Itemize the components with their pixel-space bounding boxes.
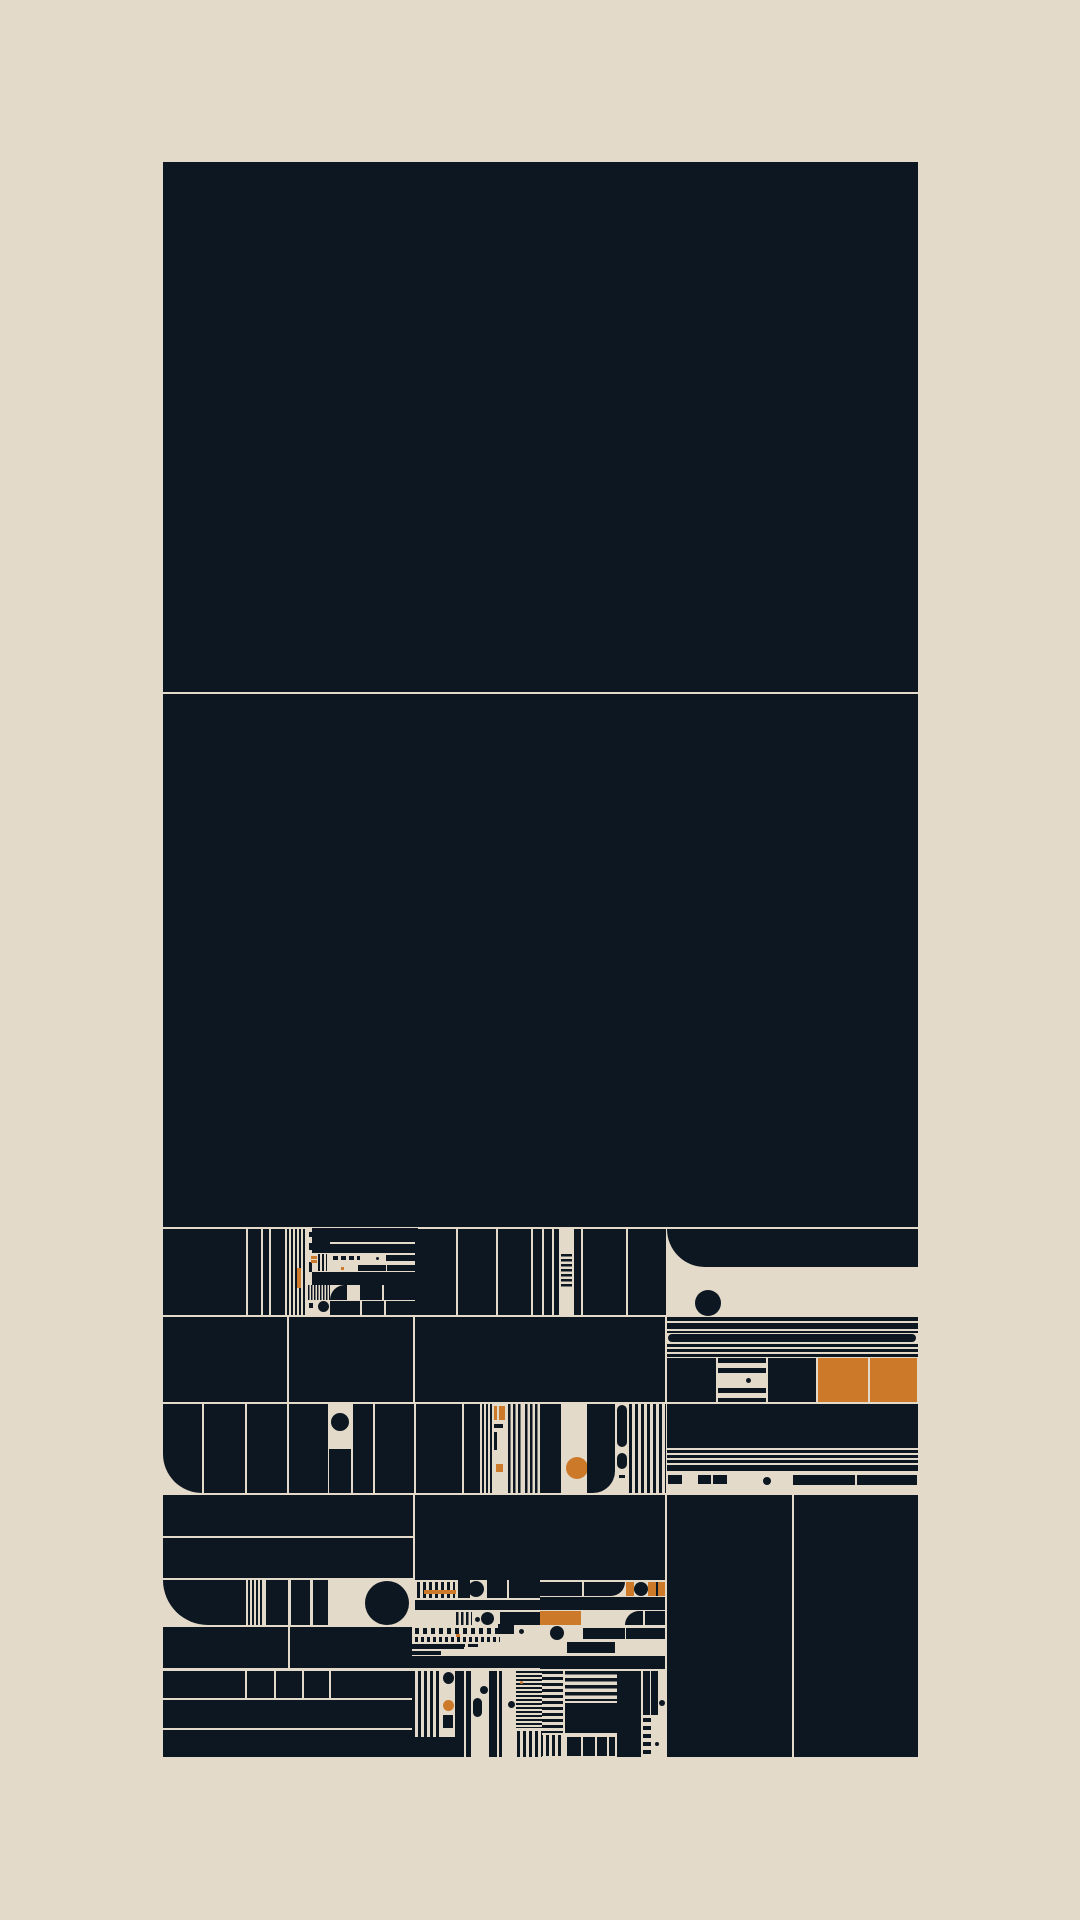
ink-block	[487, 1580, 507, 1598]
accent-shape	[311, 1260, 317, 1263]
ink-block	[793, 1475, 855, 1485]
ink-block	[163, 1317, 287, 1402]
circle-shape	[481, 1612, 494, 1625]
stripe-block	[540, 1735, 563, 1756]
ink-block	[349, 1256, 354, 1260]
ink-block	[567, 1737, 581, 1756]
accent-circle	[566, 1457, 588, 1479]
accent-shape	[626, 1582, 634, 1596]
ink-block	[455, 1644, 465, 1647]
stripe-block	[456, 1612, 472, 1625]
circle-shape	[634, 1582, 648, 1596]
ink-block	[360, 1285, 382, 1300]
ink-block	[263, 1229, 269, 1315]
ink-block	[494, 1432, 497, 1450]
ink-block	[540, 1656, 665, 1669]
ink-block	[415, 1229, 456, 1315]
circle-shape	[519, 1629, 524, 1634]
circle-shape	[655, 1742, 659, 1746]
ink-block	[540, 1582, 582, 1596]
ink-block	[667, 1460, 918, 1463]
ink-block	[330, 1301, 360, 1315]
circle-shape	[480, 1686, 488, 1694]
ink-block	[544, 1229, 552, 1315]
rounded-corner-block	[584, 1582, 625, 1596]
ink-block	[163, 1229, 246, 1315]
ink-block	[163, 1627, 288, 1668]
ladder-column	[561, 1254, 572, 1287]
stripe-block	[516, 1671, 542, 1728]
ink-block	[667, 1317, 918, 1321]
rounded-corner-block	[625, 1611, 643, 1625]
stripe-block	[508, 1404, 521, 1493]
stripe-block	[525, 1404, 540, 1493]
ink-block	[333, 1256, 338, 1260]
ink-block	[387, 1265, 418, 1271]
ink-block	[667, 1331, 918, 1333]
stripe-block	[248, 1580, 263, 1625]
ink-block	[667, 1450, 918, 1453]
ink-block	[309, 1303, 313, 1308]
ink-block	[247, 1671, 274, 1698]
ink-block	[443, 1715, 453, 1728]
ink-block	[331, 1671, 412, 1698]
ink-block	[626, 1628, 665, 1639]
circle-shape	[659, 1700, 665, 1706]
ink-block	[412, 1656, 542, 1668]
ink-block	[357, 1256, 360, 1260]
rounded-corner-block	[163, 1580, 246, 1625]
ink-block	[668, 1475, 682, 1484]
ink-block	[341, 1256, 346, 1260]
accent-shape	[496, 1464, 503, 1472]
ink-block	[498, 1229, 531, 1315]
ink-block	[415, 1495, 665, 1580]
ink-block	[415, 1317, 665, 1402]
ink-block	[667, 1465, 918, 1471]
ink-block	[489, 1671, 497, 1757]
ink-block	[597, 1737, 607, 1756]
ink-circle	[695, 1290, 721, 1316]
big-block-top	[163, 162, 918, 692]
ink-block	[304, 1671, 329, 1698]
stripe-block	[540, 1671, 563, 1733]
ink-block	[386, 1301, 418, 1315]
accent-shape	[424, 1590, 456, 1594]
big-column-right	[794, 1495, 918, 1757]
ink-block	[375, 1404, 414, 1493]
stripe-block	[629, 1404, 666, 1493]
ink-block	[248, 1229, 261, 1315]
ink-block	[667, 1455, 918, 1458]
ink-block	[540, 1404, 561, 1493]
ink-block	[163, 1671, 245, 1698]
ink-block	[628, 1229, 666, 1315]
ink-block	[330, 1244, 418, 1253]
stripe-block	[482, 1404, 492, 1493]
ink-block	[266, 1580, 288, 1625]
ink-block	[386, 1255, 418, 1261]
ink-block	[617, 1671, 641, 1757]
ink-block	[533, 1229, 542, 1315]
ink-block	[583, 1737, 595, 1756]
ink-block	[643, 1671, 650, 1715]
ink-block	[313, 1580, 328, 1625]
pill	[668, 1334, 916, 1342]
stripe-block	[565, 1671, 617, 1701]
ink-block	[656, 1582, 658, 1596]
accent-shape	[311, 1256, 317, 1259]
ink-block	[609, 1737, 615, 1756]
rounded-corner-block	[587, 1404, 615, 1493]
pill	[617, 1405, 627, 1447]
ink-block	[574, 1229, 581, 1315]
pill	[617, 1453, 627, 1469]
ink-block	[247, 1404, 287, 1493]
stripe-block	[415, 1637, 500, 1642]
ink-block	[619, 1475, 625, 1478]
quarter-round-block	[330, 1285, 347, 1300]
ink-block	[667, 1354, 918, 1357]
ink-block	[289, 1317, 413, 1402]
ink-block	[204, 1404, 245, 1493]
stripe-block	[308, 1285, 330, 1300]
artwork-canvas	[0, 0, 1080, 1920]
ink-block	[554, 1229, 559, 1315]
ink-block	[651, 1671, 658, 1715]
ink-block	[494, 1424, 503, 1428]
ink-block	[290, 1627, 412, 1668]
ladder-column	[643, 1718, 651, 1756]
ink-block	[412, 1651, 441, 1655]
ink-block	[713, 1475, 727, 1484]
accent-cell	[818, 1358, 868, 1402]
ink-block	[667, 1323, 918, 1329]
circle-shape	[376, 1257, 379, 1260]
accent-circle	[443, 1700, 454, 1711]
ink-block	[567, 1642, 615, 1653]
circle-shape	[468, 1581, 484, 1597]
ink-block	[416, 1404, 462, 1493]
ink-block	[768, 1358, 816, 1402]
ink-block	[276, 1671, 302, 1698]
ink-block	[353, 1404, 373, 1493]
accent-cell	[870, 1358, 917, 1402]
circle-dot	[318, 1301, 329, 1312]
accent-shape	[494, 1406, 497, 1420]
ink-block	[540, 1597, 665, 1610]
ink-block	[667, 1349, 918, 1352]
circle-shape	[443, 1672, 454, 1684]
ink-block	[163, 1538, 413, 1578]
ink-block	[312, 1228, 330, 1253]
ink-circle	[331, 1413, 349, 1431]
stripe-block	[517, 1731, 542, 1757]
pill	[473, 1698, 482, 1717]
ink-block	[289, 1404, 328, 1493]
ink-block	[330, 1228, 418, 1242]
ink-block	[667, 1404, 918, 1448]
ink-block	[412, 1737, 464, 1757]
big-block-middle	[163, 694, 918, 1227]
accent-cell	[540, 1611, 581, 1625]
ink-block	[163, 1495, 413, 1536]
rounded-corner-block	[667, 1229, 918, 1267]
ink-block	[667, 1344, 918, 1347]
big-circle	[365, 1581, 409, 1625]
stripe-block	[318, 1254, 327, 1271]
ink-block	[329, 1449, 351, 1493]
ink-block	[415, 1600, 540, 1610]
ink-block	[466, 1671, 471, 1757]
ink-block	[291, 1580, 310, 1625]
accent-shape	[341, 1267, 344, 1270]
ink-block	[358, 1265, 386, 1271]
ink-block	[271, 1229, 285, 1315]
accent-shape	[499, 1406, 505, 1420]
ink-block	[468, 1644, 478, 1647]
ink-block	[464, 1404, 480, 1493]
ink-block	[499, 1671, 502, 1757]
ink-block	[458, 1229, 496, 1315]
circle-shape	[475, 1617, 480, 1622]
big-column-left	[667, 1495, 792, 1757]
circle-shape	[508, 1701, 515, 1708]
ink-block	[645, 1611, 665, 1625]
ink-block	[384, 1285, 418, 1300]
circle-shape	[746, 1378, 751, 1383]
ink-circle	[550, 1626, 564, 1640]
ink-block	[667, 1358, 716, 1402]
ink-block	[362, 1301, 384, 1315]
ink-block	[163, 1730, 412, 1757]
accent-shape	[297, 1268, 301, 1288]
ink-block	[857, 1475, 917, 1485]
ink-block	[312, 1272, 418, 1285]
ink-block	[583, 1628, 625, 1639]
ink-block	[583, 1229, 626, 1315]
ink-block	[309, 1262, 312, 1272]
ink-block	[718, 1374, 766, 1386]
ink-block	[163, 1700, 412, 1728]
ink-block	[698, 1475, 711, 1484]
ink-block	[509, 1580, 540, 1598]
rounded-corner-block	[163, 1404, 202, 1493]
accent-dot	[520, 1681, 523, 1684]
ink-block	[565, 1703, 617, 1733]
ink-block	[498, 1624, 514, 1634]
circle-shape	[763, 1477, 771, 1485]
